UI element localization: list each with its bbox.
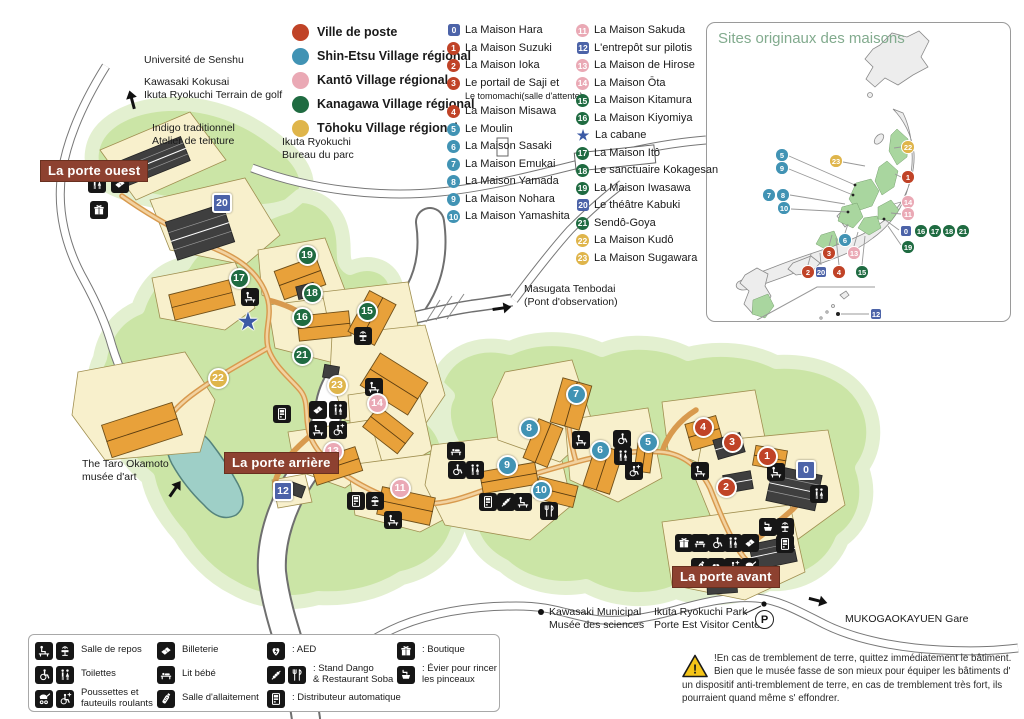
facility-legend-row: Lit bébé (157, 663, 259, 686)
inset-marker-16: 16 (914, 224, 928, 238)
facility-legend-row: : Boutique (397, 639, 497, 662)
facilities-col-2: BilleterieLit bébéSalle d'allaitement (157, 639, 259, 711)
facilities-col-4: : Boutique: Évier pour rincer les pincea… (397, 639, 497, 687)
house-number-chip: 2 (447, 59, 460, 72)
facility-label: : Stand Dango & Restaurant Soba (313, 664, 393, 686)
vending-icon (267, 690, 285, 708)
house-list-item: 1La Maison Suzuki (447, 42, 583, 55)
dango-icon (267, 666, 285, 684)
village-color-dot (292, 48, 309, 65)
house-list-item: 7La Maison Emukai (447, 158, 583, 171)
house-number-chip: 14 (576, 77, 589, 90)
house-label: La Maison Yamada (465, 175, 559, 188)
wheelchair-icon (35, 666, 53, 684)
house-label: La Maison Sugawara (594, 252, 697, 265)
visitor-center-dot (761, 601, 766, 606)
house-label: L'entrepôt sur pilotis (594, 42, 692, 55)
house-label: La Maison Iwasawa (594, 182, 691, 195)
ticket-icon (157, 642, 175, 660)
star-marker-chip: ★ (576, 129, 590, 142)
house-list-item: 2La Maison Ioka (447, 59, 583, 72)
facilities-col-3: : AED: Stand Dango & Restaurant Soba: Di… (267, 639, 401, 711)
inset-marker-1: 1 (901, 170, 915, 184)
facility-legend-row: Salle de repos (35, 639, 153, 662)
facility-label: : Boutique (422, 645, 465, 656)
house-number-chip: 13 (576, 59, 589, 72)
house-number-chip: 20 (577, 199, 589, 211)
inset-marker-19: 19 (901, 240, 915, 254)
house-label: La cabane (595, 129, 646, 142)
house-label: Le portail de Saji et (465, 77, 559, 90)
facility-legend-row: : Évier pour rincer les pinceaux (397, 663, 497, 686)
facility-legend-row: : AED (267, 639, 401, 662)
house-number-chip: 22 (576, 234, 589, 247)
inset-marker-10: 10 (777, 201, 791, 215)
village-color-dot (292, 72, 309, 89)
facility-label: Salle d'allaitement (182, 693, 259, 704)
facility-label: : Distributeur automatique (292, 693, 401, 704)
inset-marker-9: 9 (775, 161, 789, 175)
facility-label: : AED (292, 645, 316, 656)
house-label: La Maison Hara (465, 24, 543, 37)
house-list-item: 6La Maison Sasaki (447, 140, 583, 153)
house-label: La Maison Kiyomiya (594, 112, 692, 125)
house-number-chip: 8 (447, 175, 460, 188)
facility-legend-row: : Distributeur automatique (267, 687, 401, 710)
house-number-chip: 15 (576, 94, 589, 107)
science-museum-dot (538, 609, 544, 615)
house-label: La Maison Itô (594, 147, 660, 160)
house-list-item: 19La Maison Iwasawa (576, 182, 718, 195)
house-list-item: 20Le théâtre Kabuki (576, 199, 718, 212)
stroller-icon (35, 690, 53, 708)
house-list-item: 5Le Moulin (447, 123, 583, 136)
village-color-dot (292, 120, 309, 137)
house-list-item: 9La Maison Nohara (447, 193, 583, 206)
facility-legend-row: Salle d'allaitement (157, 687, 259, 710)
baby-icon (157, 666, 175, 684)
house-label: La Maison Sakuda (594, 24, 685, 37)
facility-legend-row: Billeterie (157, 639, 259, 662)
house-list-item: 3Le portail de Saji et (447, 77, 583, 90)
village-label: Ville de poste (317, 25, 397, 39)
inset-marker-3: 3 (822, 246, 836, 260)
facility-label: Salle de repos (81, 645, 142, 656)
house-label: La Maison Sasaki (465, 140, 552, 153)
facility-label: Poussettes et fauteuils roulants (81, 688, 153, 710)
house-number-chip: 6 (447, 140, 460, 153)
house-number-chip: 0 (448, 24, 460, 36)
inset-marker-17: 17 (928, 224, 942, 238)
facility-label: Toilettes (81, 669, 116, 680)
inset-marker-6: 6 (838, 233, 852, 247)
inset-marker-23: 23 (829, 154, 843, 168)
inset-marker-11: 11 (901, 207, 915, 221)
house-list-item: 13La Maison de Hirose (576, 59, 718, 72)
warning-text: !En cas de tremblement de terre, quittez… (682, 653, 1011, 704)
house-list-item: 15La Maison Kitamura (576, 94, 718, 107)
inset-marker-12: 12 (870, 308, 882, 320)
facility-label: Billeterie (182, 645, 218, 656)
folk-house-museum-map: Sites originaux des maisons (0, 0, 1024, 719)
wheelchair-star-icon (56, 690, 74, 708)
house-list-item: 21Sendô-Goya (576, 217, 718, 230)
inset-markers: 59781023221141101617182119631322041512 (707, 23, 1010, 321)
house-label: La Maison Ioka (465, 59, 540, 72)
house-label: La Maison Yamashita (465, 210, 570, 223)
house-number-chip: 17 (576, 147, 589, 160)
village-color-dot (292, 96, 309, 113)
house-list-col1: 0La Maison Hara1La Maison Suzuki2La Mais… (447, 24, 583, 228)
house-label: Sendô-Goya (594, 217, 656, 230)
house-label: La Maison Suzuki (465, 42, 552, 55)
house-number-chip: 11 (576, 24, 589, 37)
inset-marker-21: 21 (956, 224, 970, 238)
village-color-dot (292, 24, 309, 41)
inset-marker-8: 8 (776, 188, 790, 202)
house-number-chip: 7 (447, 158, 460, 171)
house-list-item: 22La Maison Kudô (576, 234, 718, 247)
fountain-icon (56, 642, 74, 660)
house-number-chip: 23 (576, 252, 589, 265)
rest-icon (35, 642, 53, 660)
inset-marker-7: 7 (762, 188, 776, 202)
house-number-chip: 12 (577, 42, 589, 54)
house-number-chip: 1 (447, 42, 460, 55)
facility-legend-row: : Stand Dango & Restaurant Soba (267, 663, 401, 686)
house-label: La Maison de Hirose (594, 59, 695, 72)
house-number-chip: 10 (447, 210, 460, 223)
house-label: La Maison Nohara (465, 193, 555, 206)
house-list-item: 8La Maison Yamada (447, 175, 583, 188)
house-list-item: 18Le sanctuaire Kokagesan (576, 164, 718, 177)
house-label-sub: Le tomomachi(salle d'attente) (465, 91, 583, 101)
house-list-item: ★La cabane (576, 129, 718, 142)
house-label: La Maison Kudô (594, 234, 674, 247)
house-label: La Maison Emukai (465, 158, 556, 171)
house-label: La Maison Ōta (594, 77, 666, 90)
village-label: Kantō Village régional (317, 73, 448, 87)
inset-marker-13: 13 (847, 246, 861, 260)
house-label: La Maison Kitamura (594, 94, 692, 107)
house-list-item: 11La Maison Sakuda (576, 24, 718, 37)
parking-icon: P (755, 610, 774, 629)
house-list-item: 23La Maison Sugawara (576, 252, 718, 265)
inset-marker-4: 4 (832, 265, 846, 279)
house-list-col2: 11La Maison Sakuda12L'entrepôt sur pilot… (576, 24, 718, 269)
house-list-item: 14La Maison Ōta (576, 77, 718, 90)
inset-marker-15: 15 (855, 265, 869, 279)
inset-marker-0: 0 (900, 225, 912, 237)
earthquake-warning: ! !En cas de tremblement de terre, quitt… (682, 652, 1022, 705)
house-number-chip: 16 (576, 112, 589, 125)
facility-label: : Évier pour rincer les pinceaux (422, 664, 497, 686)
house-label: Le sanctuaire Kokagesan (594, 164, 718, 177)
inset-original-sites: Sites originaux des maisons (706, 22, 1011, 322)
house-list-item: 4La Maison Misawa (447, 105, 583, 118)
village-label: Tōhoku Village régional (317, 121, 458, 135)
facilities-legend: Salle de reposToilettesPoussettes et fau… (28, 634, 500, 712)
house-label: Le Moulin (465, 123, 513, 136)
boutique-icon (397, 642, 415, 660)
facility-label: Lit bébé (182, 669, 216, 680)
facility-legend-row: Toilettes (35, 663, 153, 686)
house-label: Le théâtre Kabuki (594, 199, 680, 212)
house-list-item: 12L'entrepôt sur pilotis (576, 42, 718, 55)
inset-marker-18: 18 (942, 224, 956, 238)
warning-icon: ! (682, 654, 708, 678)
inset-marker-2: 2 (801, 265, 815, 279)
sink-icon (397, 666, 415, 684)
house-number-chip: 21 (576, 217, 589, 230)
inset-marker-22: 22 (901, 140, 915, 154)
house-label: La Maison Misawa (465, 105, 556, 118)
house-list-item: 16La Maison Kiyomiya (576, 112, 718, 125)
inset-marker-5: 5 (775, 148, 789, 162)
svg-text:!: ! (693, 662, 697, 677)
toilets-icon (56, 666, 74, 684)
house-number-chip: 9 (447, 193, 460, 206)
facilities-col-1: Salle de reposToilettesPoussettes et fau… (35, 639, 153, 711)
house-list-item: 10La Maison Yamashita (447, 210, 583, 223)
facility-legend-row: Poussettes et fauteuils roulants (35, 687, 153, 710)
house-list-item: 17La Maison Itô (576, 147, 718, 160)
aed-icon (267, 642, 285, 660)
parking-letter: P (761, 614, 768, 626)
house-list-item: 0La Maison Hara (447, 24, 583, 37)
house-number-chip: 3 (447, 77, 460, 90)
house-number-chip: 5 (447, 123, 460, 136)
house-number-chip: 19 (576, 182, 589, 195)
house-number-chip: 4 (447, 105, 460, 118)
inset-marker-20: 20 (815, 266, 827, 278)
restaurant-icon (288, 666, 306, 684)
bottle-icon (157, 690, 175, 708)
house-number-chip: 18 (576, 164, 589, 177)
